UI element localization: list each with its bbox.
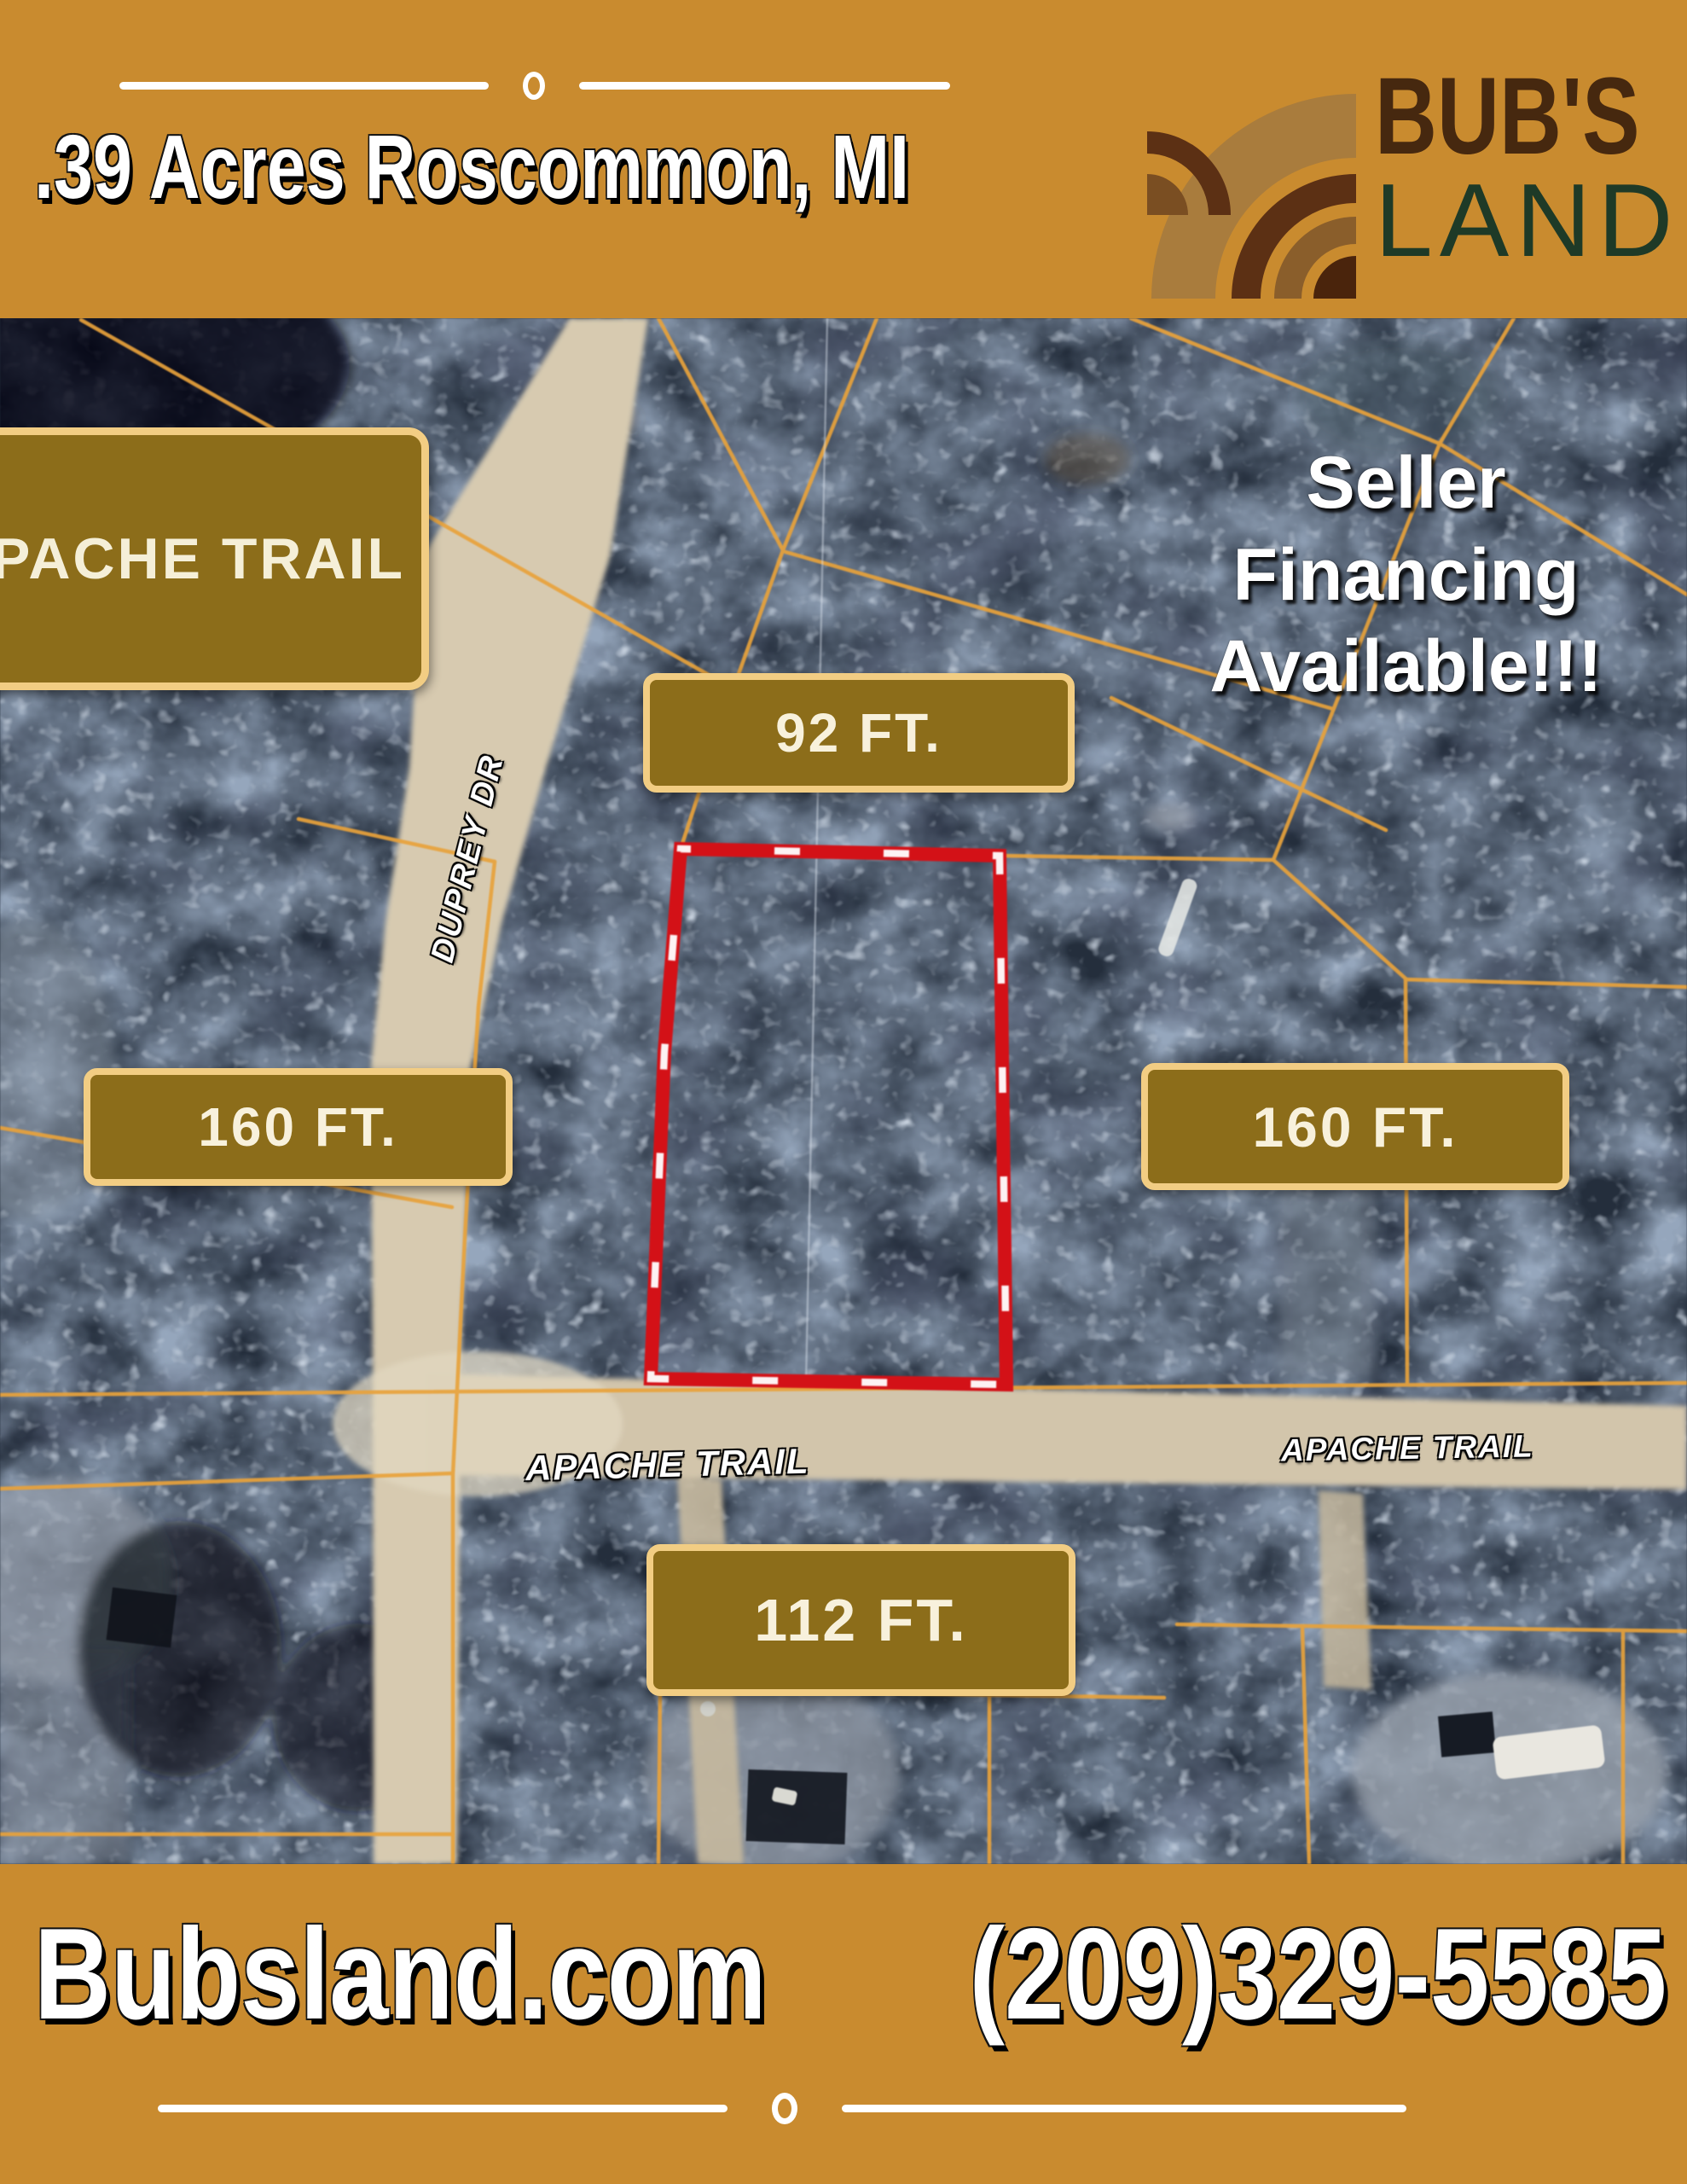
measurement-label-top: 92 FT. [643,673,1075,793]
website-text: Bubsland.com [34,1903,767,2046]
brand-logo: BUB'S LAND [1375,61,1687,272]
divider-bar [842,2105,1406,2112]
footer-divider-ornament [158,2093,1406,2124]
divider-circle-icon [523,72,545,100]
promo-line: Seller [1122,438,1687,530]
measurement-label-right: 160 FT. [1141,1063,1569,1190]
divider-circle-icon [772,2093,797,2124]
plowed-field-icon [1147,78,1356,299]
measurement-label-bottom: 112 FT. [646,1544,1075,1696]
phone-number-text: (209)329-5585 [969,1903,1667,2046]
header-divider-ornament [119,72,950,100]
flyer-page: .39 Acres Roscommon, MI BUB'S LAND [0,0,1687,2184]
promo-line: Financing [1122,530,1687,622]
street-sign-box: APACHE TRAIL [0,427,429,690]
divider-bar [579,82,950,90]
brand-name-top: BUB'S [1375,61,1640,173]
promo-line: Available!!! [1122,621,1687,713]
divider-bar [119,82,489,90]
satellite-map: APACHE TRAIL 92 FT. 160 FT. 160 FT. 112 … [0,318,1687,1864]
brand-name-bottom: LAND [1375,168,1687,272]
seller-financing-note: Seller Financing Available!!! [1122,438,1687,713]
footer-band: Bubsland.com (209)329-5585 [0,1864,1687,2184]
road-name-apache-trail-left: APACHE TRAIL [525,1441,810,1490]
road-name-apache-trail-right: APACHE TRAIL [1281,1428,1534,1468]
page-title: .39 Acres Roscommon, MI [34,118,909,218]
divider-bar [158,2105,728,2112]
measurement-label-left: 160 FT. [84,1068,513,1186]
